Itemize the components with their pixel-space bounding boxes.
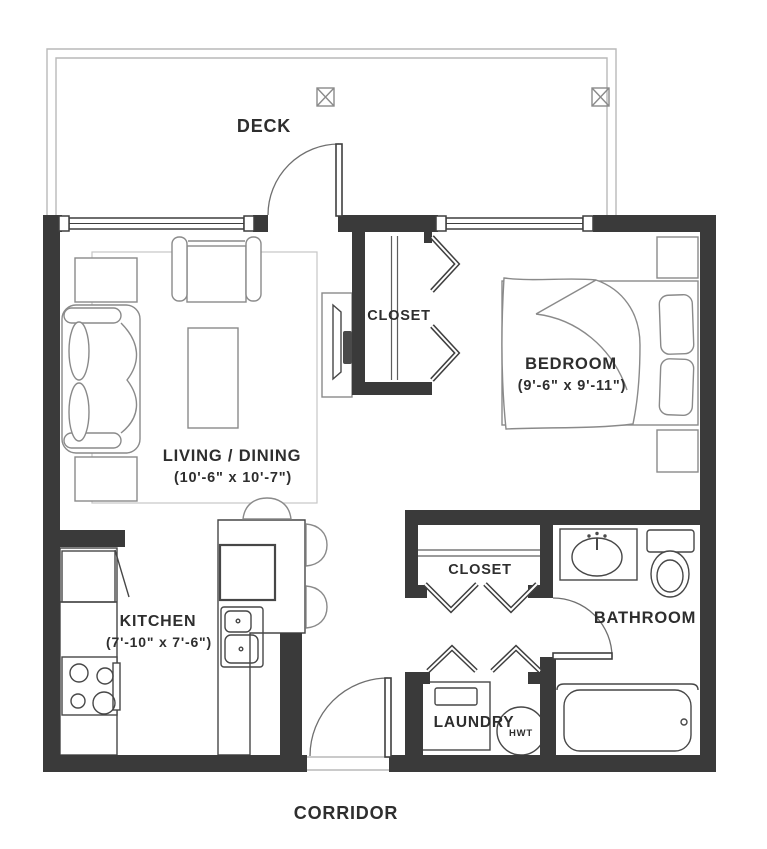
nightstand-bottom <box>657 430 698 472</box>
hwt-label: HWT <box>509 728 533 739</box>
window-living <box>59 216 254 231</box>
tv-unit <box>322 293 352 397</box>
wall-laundry-corner <box>528 672 556 684</box>
bifold-door-laundry <box>428 648 540 671</box>
window-bedroom <box>436 216 593 231</box>
floor-plan-drawing: DECK LIVING / DINING (10'-6" x 10'-7") C… <box>0 0 767 849</box>
deck-door <box>268 144 342 216</box>
bathroom-door <box>553 598 612 659</box>
bathroom-area <box>557 529 698 751</box>
deck-area <box>47 49 616 215</box>
wall-closet-left <box>352 232 365 395</box>
side-table-top <box>75 258 137 302</box>
door-swing-arc <box>268 144 339 215</box>
entry-door <box>307 678 391 771</box>
deck-label: DECK <box>237 116 291 136</box>
armchair <box>172 237 261 302</box>
kitchen-label: KITCHEN <box>120 613 197 630</box>
wall-right <box>700 215 716 772</box>
stove-icon <box>62 657 120 715</box>
coffee-table <box>188 328 238 428</box>
living-label: LIVING / DINING <box>163 447 302 465</box>
wall-kitchen-stub <box>57 530 125 547</box>
floor-plan: DECK LIVING / DINING (10'-6" x 10'-7") C… <box>0 0 767 849</box>
bathroom-label: BATHROOM <box>594 609 696 627</box>
bar-stool <box>306 524 327 566</box>
living-dims: (10'-6" x 10'-7") <box>174 470 292 486</box>
wall-laundry-corner <box>405 672 430 684</box>
tv-mount <box>343 331 352 364</box>
kitchen-counter-left <box>60 548 117 755</box>
deck-outline-outer <box>47 49 616 215</box>
door-leaf <box>336 144 342 216</box>
wall-closet-top <box>338 215 438 232</box>
wall-bedroom-bathroom <box>405 510 700 525</box>
bar-stool <box>306 586 327 628</box>
bedroom-dims: (9'-6" x 9'-11") <box>518 378 626 394</box>
side-table-bottom <box>75 457 137 501</box>
bathtub-icon <box>557 684 698 751</box>
kitchen-dims: (7'-10" x 7'-6") <box>106 634 212 650</box>
wall-bottom-right <box>389 755 716 772</box>
corridor-label: CORRIDOR <box>294 803 398 823</box>
wall-bath-laundry <box>540 657 556 755</box>
door-leaf <box>385 678 391 757</box>
pillow <box>659 294 694 354</box>
wall-top-post <box>253 215 268 232</box>
toilet-icon <box>647 530 694 597</box>
closet-hall-label: CLOSET <box>448 562 512 578</box>
door-leaf <box>553 653 612 659</box>
wall-left <box>43 215 60 772</box>
closet-entry-label: CLOSET <box>367 308 431 324</box>
wall-entry-stub <box>280 633 302 755</box>
pillow <box>659 358 694 415</box>
bifold-door-closet-entry <box>432 237 457 380</box>
bar-stool <box>243 498 291 519</box>
blanket <box>502 278 640 429</box>
bedroom-label: BEDROOM <box>525 355 617 373</box>
deck-outline-inner <box>56 58 607 215</box>
wall-bedroom-top <box>593 215 716 232</box>
door-swing-arc <box>553 598 612 657</box>
wall-hall-closet-stub <box>405 585 427 598</box>
tv-icon <box>333 305 341 379</box>
wall-laundry-left <box>405 672 423 755</box>
deck-post-icon <box>317 88 334 106</box>
nightstand-top <box>657 237 698 278</box>
sofa <box>62 305 140 453</box>
bifold-door-closet-hall <box>425 584 537 610</box>
bed <box>502 278 698 429</box>
laundry-label: LAUNDRY <box>434 714 515 731</box>
wall-closet-jamb <box>424 232 432 243</box>
closet-shelf <box>418 550 540 556</box>
wall-closet-bottom <box>352 382 432 395</box>
door-swing-arc <box>310 678 388 756</box>
wall-bottom-left <box>43 755 307 772</box>
